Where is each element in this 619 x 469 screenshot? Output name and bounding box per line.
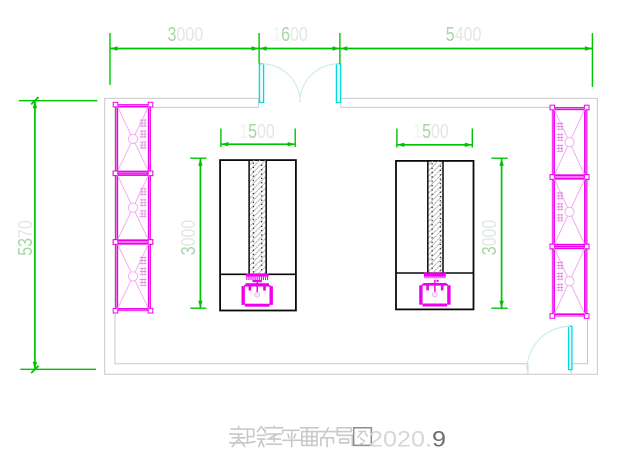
svg-text:3000: 3000 bbox=[168, 23, 204, 45]
svg-text:5370: 5370 bbox=[14, 220, 36, 256]
svg-text:2020.9: 2020.9 bbox=[369, 427, 446, 452]
svg-text:1500: 1500 bbox=[239, 120, 275, 142]
svg-text:1500: 1500 bbox=[413, 120, 449, 142]
svg-text:3000: 3000 bbox=[177, 220, 199, 256]
svg-text:3000: 3000 bbox=[478, 220, 500, 256]
svg-text:5400: 5400 bbox=[446, 23, 482, 45]
svg-text:1600: 1600 bbox=[272, 23, 308, 45]
